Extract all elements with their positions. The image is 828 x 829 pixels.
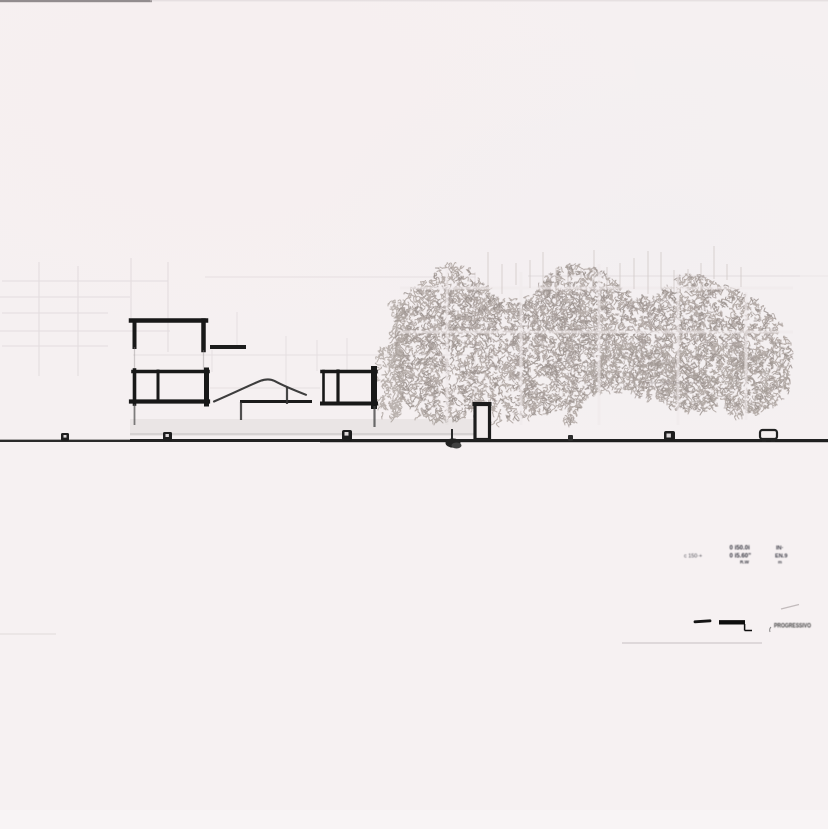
svg-text:R.W: R.W — [740, 560, 750, 565]
svg-text:IN·: IN· — [776, 546, 784, 552]
svg-text:c 150·+: c 150·+ — [684, 554, 702, 560]
svg-text:0 i50.0i: 0 i50.0i — [730, 545, 751, 552]
svg-text:PROGRESSIVO: PROGRESSIVO — [774, 623, 811, 630]
svg-text:m: m — [778, 560, 782, 565]
svg-text:0 i5.60”: 0 i5.60” — [730, 553, 752, 560]
